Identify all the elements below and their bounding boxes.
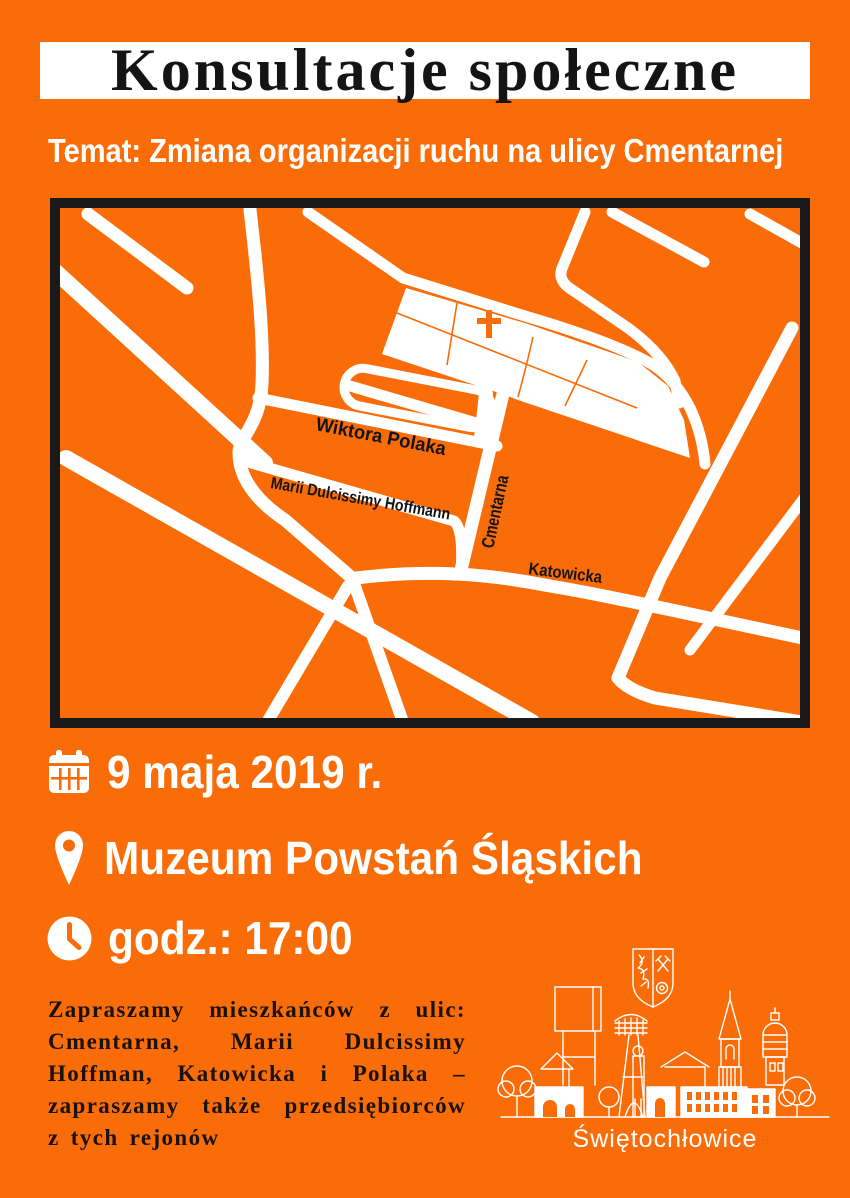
clock-icon: [46, 915, 93, 962]
page-title: Konsultacje społeczne: [111, 36, 739, 105]
event-time-row: godz.: 17:00: [46, 912, 374, 964]
invitation-line: Zapraszamymieszkańcówzulic:: [48, 994, 466, 1026]
invitation-line: z tych rejonów: [48, 1122, 466, 1154]
city-logo: Świętochłowice: [495, 925, 835, 1165]
city-name: Świętochłowice: [495, 1125, 835, 1154]
calendar-icon: [48, 750, 90, 795]
event-place-row: Muzeum Powstań Śląskich: [54, 828, 689, 888]
street-map: Wiktora Polaka Marii Dulcissimy Hoffmann…: [50, 198, 810, 728]
invitation-paragraph: Zapraszamymieszkańcówzulic:Cmentarna,Mar…: [48, 994, 466, 1154]
invitation-line: zapraszamytakżeprzedsiębiorców: [48, 1090, 466, 1122]
mine-building: [555, 987, 601, 1085]
event-date-row: 9 maja 2019 r.: [48, 746, 406, 798]
subtitle: Temat: Zmiana organizacji ruchu na ulicy…: [48, 132, 838, 170]
row-building: [681, 1087, 747, 1117]
center-building: [647, 1087, 675, 1117]
coat-of-arms-icon: [633, 949, 673, 1007]
tree-icon: [498, 1066, 536, 1117]
title-banner: Konsultacje społeczne: [40, 42, 810, 99]
subtitle-text: Temat: Zmiana organizacji ruchu na ulicy…: [48, 132, 783, 170]
invitation-line: Cmentarna,MariiDulcissimy: [48, 1026, 466, 1058]
water-tower-icon: [763, 1008, 787, 1085]
event-date: 9 maja 2019 r.: [107, 745, 382, 799]
tree-icon: [599, 1087, 619, 1117]
event-place: Muzeum Powstań Śląskich: [104, 831, 643, 885]
mine-headframe-icon: [615, 1015, 647, 1118]
church: [661, 991, 741, 1087]
event-time: godz.: 17:00: [108, 911, 353, 965]
location-pin-icon: [54, 830, 84, 886]
invitation-line: Hoffman,KatowickaiPolaka–: [48, 1058, 466, 1090]
left-building: [535, 1053, 583, 1117]
poster: Konsultacje społeczne Temat: Zmiana orga…: [0, 0, 850, 1198]
right-building: [747, 1089, 775, 1117]
